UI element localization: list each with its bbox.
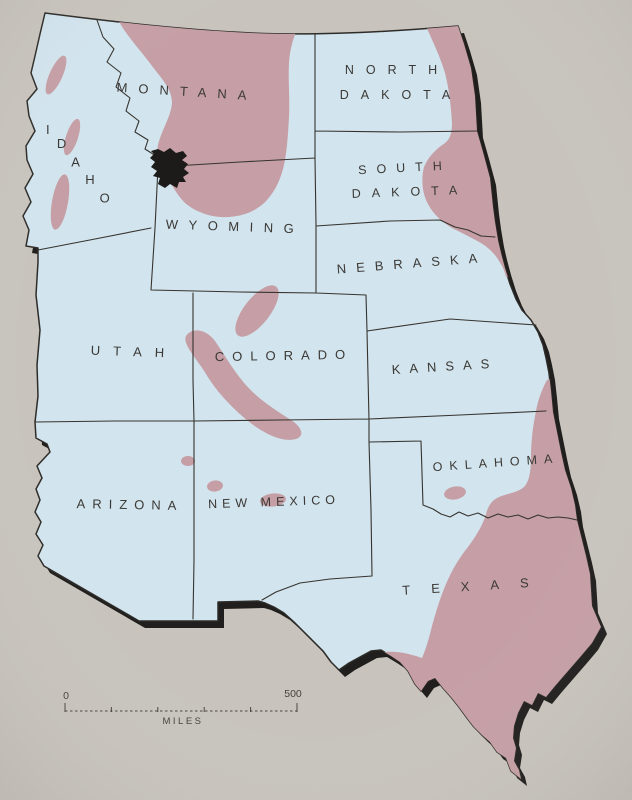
map-page: MONTANA NORTH DAKOTA IDAHO WYOMING SOUTH… [0,0,632,800]
vignette-overlay [0,0,632,800]
plains-states-map: MONTANA NORTH DAKOTA IDAHO WYOMING SOUTH… [0,0,632,800]
